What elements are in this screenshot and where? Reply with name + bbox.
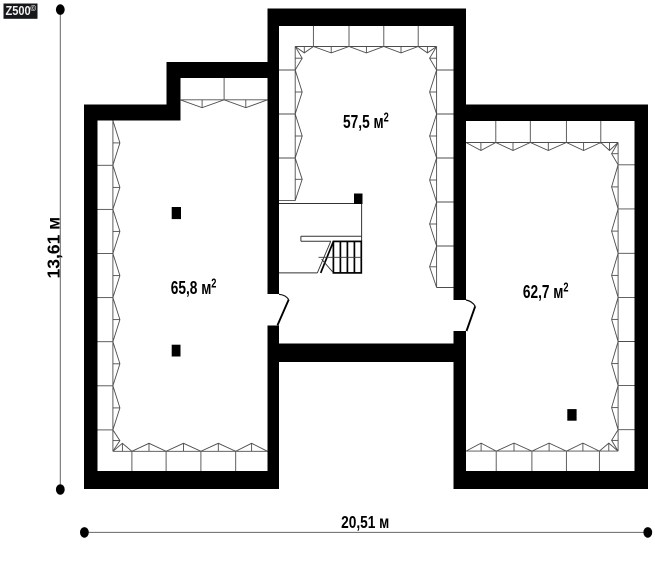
svg-text:Z500: Z500	[6, 3, 31, 18]
svg-text:57,5 м2: 57,5 м2	[343, 111, 389, 132]
svg-text:13,61 м: 13,61 м	[44, 217, 64, 279]
svg-text:65,8 м2: 65,8 м2	[171, 277, 217, 298]
svg-text:©: ©	[30, 4, 36, 13]
svg-text:20,51 м: 20,51 м	[341, 513, 389, 532]
svg-text:62,7 м2: 62,7 м2	[523, 281, 569, 302]
